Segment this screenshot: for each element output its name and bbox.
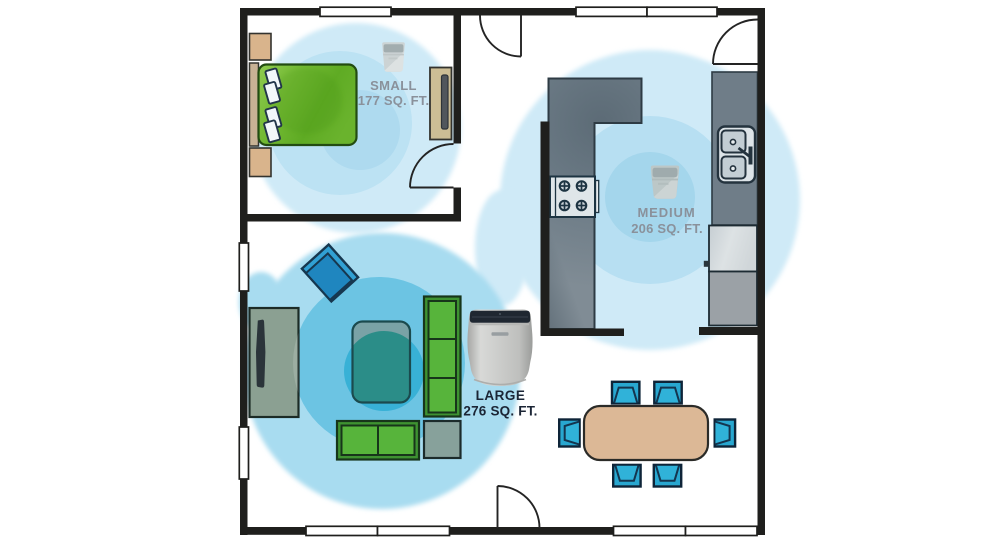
svg-text:177 SQ. FT.: 177 SQ. FT. — [358, 93, 430, 108]
svg-text:206 SQ. FT.: 206 SQ. FT. — [631, 221, 703, 236]
svg-text:MEDIUM: MEDIUM — [637, 205, 695, 220]
svg-text:LARGE: LARGE — [476, 388, 526, 403]
svg-text:SMALL: SMALL — [370, 78, 417, 93]
svg-text:276 SQ. FT.: 276 SQ. FT. — [463, 404, 537, 419]
